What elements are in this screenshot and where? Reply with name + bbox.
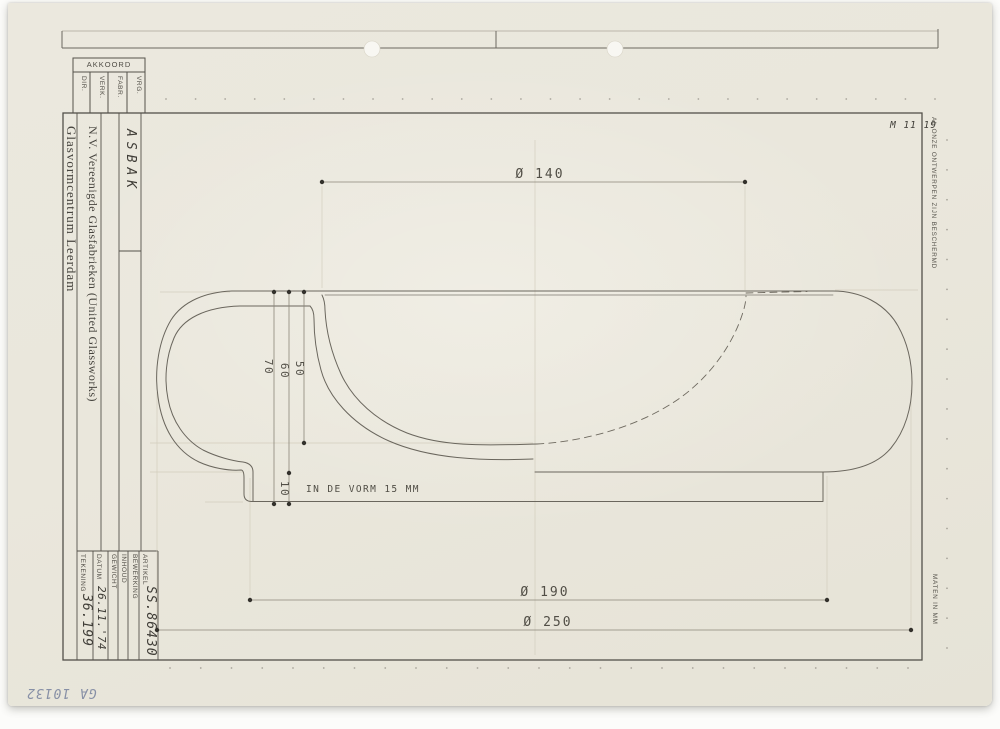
field-label-bewerking: BEWERKING: [131, 554, 138, 599]
pencil-code-bottom-left: GA 10132: [26, 686, 97, 699]
dim-opening-label: Ø 140: [515, 167, 564, 182]
dim-height-total-label: 70: [262, 359, 275, 375]
field-value-artikel: SS.86430: [144, 586, 157, 657]
bowl-inner-surface: [322, 295, 537, 445]
dimension-lines: [157, 182, 911, 630]
registration-dots: [165, 98, 948, 669]
rolled-rim-outer: [157, 291, 253, 502]
binding-strip: [62, 29, 938, 48]
ashtray-profile: [157, 291, 912, 502]
company-main: N.V. Vereenigde Glasfabrieken (United Gl…: [87, 126, 99, 402]
right-bulge: [823, 291, 912, 472]
stamp-col-dir: DIR.: [80, 76, 87, 110]
stamp-col-verk: VERK.: [97, 76, 104, 110]
field-label-inhoud: INHOUD: [120, 554, 127, 583]
bowl-outer-surface: [310, 306, 533, 460]
dimension-labels: Ø 140 Ø 190 Ø 250 70 60 50 10 IN DE VORM…: [262, 167, 573, 630]
main-border: [63, 113, 922, 660]
dim-base-height-label: 10: [278, 481, 291, 497]
pencil-code-top-right: M 11 19: [890, 121, 937, 131]
stamp-col-vrg: VRG.: [134, 76, 141, 110]
field-label-gewicht: GEWICHT: [110, 554, 117, 589]
field-value-tekening: 36.199: [80, 594, 93, 647]
field-value-datum: 26.11.'74: [96, 586, 107, 650]
hidden-inner-rim: [537, 292, 807, 445]
punch-hole-left: [364, 41, 380, 57]
company-sub: Glasvormcentrum Leerdam: [65, 126, 78, 292]
scanned-drawing-sheet: Ø 140 Ø 190 Ø 250 70 60 50 10 IN DE VORM…: [0, 0, 1000, 729]
rights-notice: AL ONZE ONTWERPEN ZIJN BESCHERMD: [930, 117, 936, 269]
dimension-endpoints: [155, 180, 913, 632]
stamp-col-fabr: FABR.: [116, 76, 123, 110]
mould-note: IN DE VORM 15 MM: [306, 484, 420, 495]
rolled-rim-inner: [166, 306, 310, 472]
product-name: ASBAK: [124, 129, 137, 193]
construction-guides: [150, 140, 918, 655]
units-notice: MATEN IN MM: [931, 574, 937, 625]
punch-hole-right: [607, 41, 623, 57]
dim-depth-label: 50: [293, 361, 306, 377]
field-label-datum: DATUM: [94, 554, 101, 580]
dim-height-wall-label: 60: [278, 363, 291, 379]
stamp-table-header: AKKOORD: [73, 61, 145, 69]
field-label-artikel: ARTIKEL: [141, 554, 148, 585]
dim-overall-label: Ø 250: [523, 615, 572, 630]
field-label-tekening: TEKENING: [79, 554, 86, 592]
dim-base-label: Ø 190: [520, 585, 569, 600]
